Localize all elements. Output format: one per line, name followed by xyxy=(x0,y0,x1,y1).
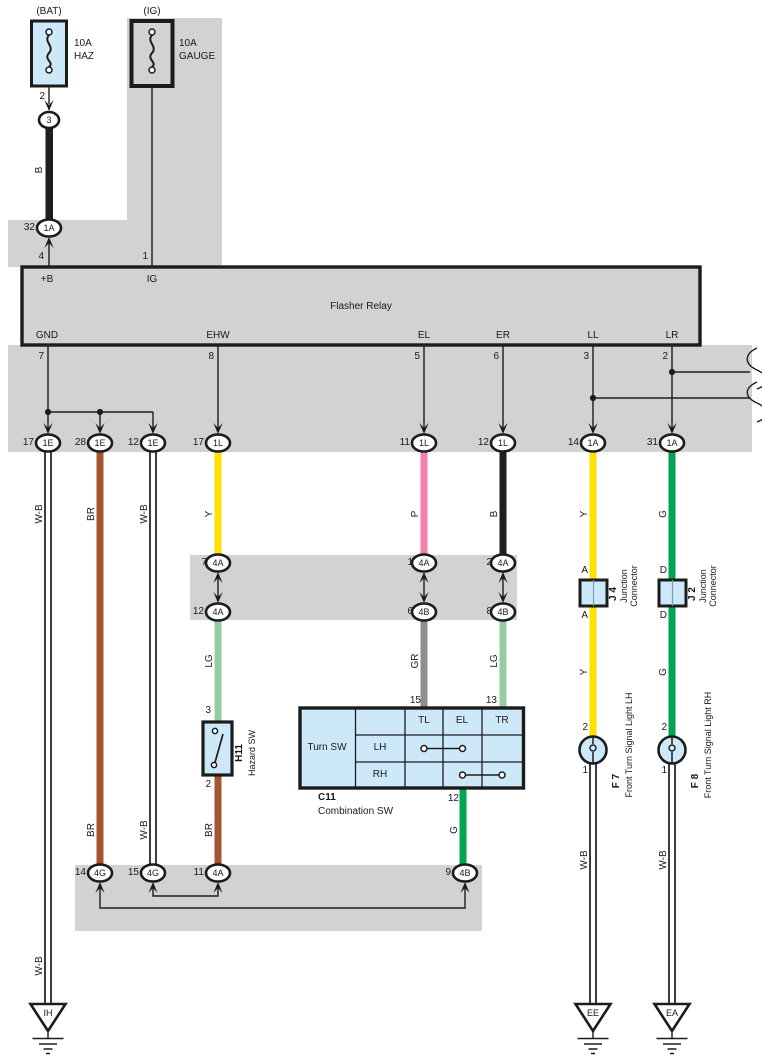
wiring-canvas xyxy=(0,0,762,1062)
junction-connector-j2 xyxy=(659,580,686,606)
gray-panels xyxy=(8,18,752,931)
flasher-relay-box xyxy=(22,267,700,345)
ground-ih xyxy=(31,1004,66,1054)
fuse-ig-terminal-bottom xyxy=(149,67,155,73)
bulb-f8 xyxy=(659,737,686,764)
conn-4b-9 xyxy=(453,865,477,882)
dot-lr xyxy=(669,369,675,375)
conn-4a-7 xyxy=(206,555,230,572)
conn-1e-17 xyxy=(36,435,60,452)
conn-4b-6 xyxy=(412,604,436,621)
ground-ee xyxy=(576,1004,611,1054)
conn-1e-12 xyxy=(141,435,165,452)
ih-earth-icon xyxy=(33,1039,64,1054)
wire-br-28-to-14 xyxy=(97,451,104,865)
conn-1a-14 xyxy=(581,435,605,452)
wire-br-hazard-lower xyxy=(215,774,222,865)
conn-4b-8 xyxy=(491,604,515,621)
dot-gnd-2 xyxy=(97,409,103,415)
combo-contact-lh-tl xyxy=(421,746,427,752)
conn-4a-1 xyxy=(412,555,436,572)
wire-b-er xyxy=(500,451,507,555)
conn-1l-12 xyxy=(491,435,515,452)
dot-ll xyxy=(590,395,596,401)
wire-wb-left xyxy=(45,451,51,1004)
ea-earth-icon xyxy=(657,1039,688,1054)
wire-y-ll-upper xyxy=(590,451,597,581)
wire-y-ehw xyxy=(215,451,222,555)
wire-g-lr-upper xyxy=(669,451,676,581)
fuse-ig-terminal-top xyxy=(149,29,155,35)
fuse-bat-terminal-top xyxy=(46,29,52,35)
wire-y-ll-lower xyxy=(590,605,597,737)
fuse-bat xyxy=(32,21,67,86)
wire-b-bat xyxy=(46,127,54,219)
combination-switch-table xyxy=(300,708,524,788)
conn-1a-31 xyxy=(660,435,684,452)
wire-wb-f7 xyxy=(590,763,596,1004)
ea-triangle-icon xyxy=(655,1004,690,1031)
ground-ea xyxy=(655,1004,690,1054)
wire-g-lr-lower xyxy=(669,605,676,737)
wire-wb-mid xyxy=(150,451,156,865)
fuse-bat-terminal-bottom xyxy=(46,67,52,73)
combo-table-body xyxy=(300,708,524,788)
wire-lg-combo xyxy=(500,620,507,709)
conn-1a-32 xyxy=(37,220,61,237)
wire-gr-combo xyxy=(421,620,428,709)
wire-wb-f8 xyxy=(669,763,675,1004)
hazard-contact-bottom xyxy=(211,762,216,767)
panel-left-block xyxy=(8,220,127,267)
conn-1l-11 xyxy=(412,435,436,452)
hazard-contact-top xyxy=(212,728,217,733)
conn-1e-28 xyxy=(88,435,112,452)
ee-triangle-icon xyxy=(576,1004,611,1031)
conn-1l-17 xyxy=(206,435,230,452)
panel-4g-band xyxy=(75,865,482,931)
combo-contact-rh-el xyxy=(460,772,466,778)
conn-4a-11 xyxy=(206,865,230,882)
bulb-f7 xyxy=(580,737,607,764)
wire-g-combo-out xyxy=(460,787,467,865)
wire-p-el xyxy=(421,451,428,555)
conn-4a-12 xyxy=(206,604,230,621)
panel-4a-band xyxy=(190,555,517,620)
dot-gnd-1 xyxy=(45,409,51,415)
conn-4g-14 xyxy=(88,865,112,882)
ih-triangle-icon xyxy=(31,1004,66,1031)
hazard-switch xyxy=(203,722,232,775)
conn-4g-15 xyxy=(141,865,165,882)
combo-contact-rh-tr xyxy=(499,772,505,778)
combo-contact-lh-el xyxy=(460,746,466,752)
ee-earth-icon xyxy=(578,1039,609,1054)
junction-connector-j4 xyxy=(580,580,607,606)
wiring-diagram-page: (BAT)(IG)10AHAZ10AGAUGE23B321A41+BIGFlas… xyxy=(0,0,762,1062)
conn-4a-2 xyxy=(491,555,515,572)
wire-lg-hazard xyxy=(215,620,222,723)
conn-3 xyxy=(39,112,59,128)
